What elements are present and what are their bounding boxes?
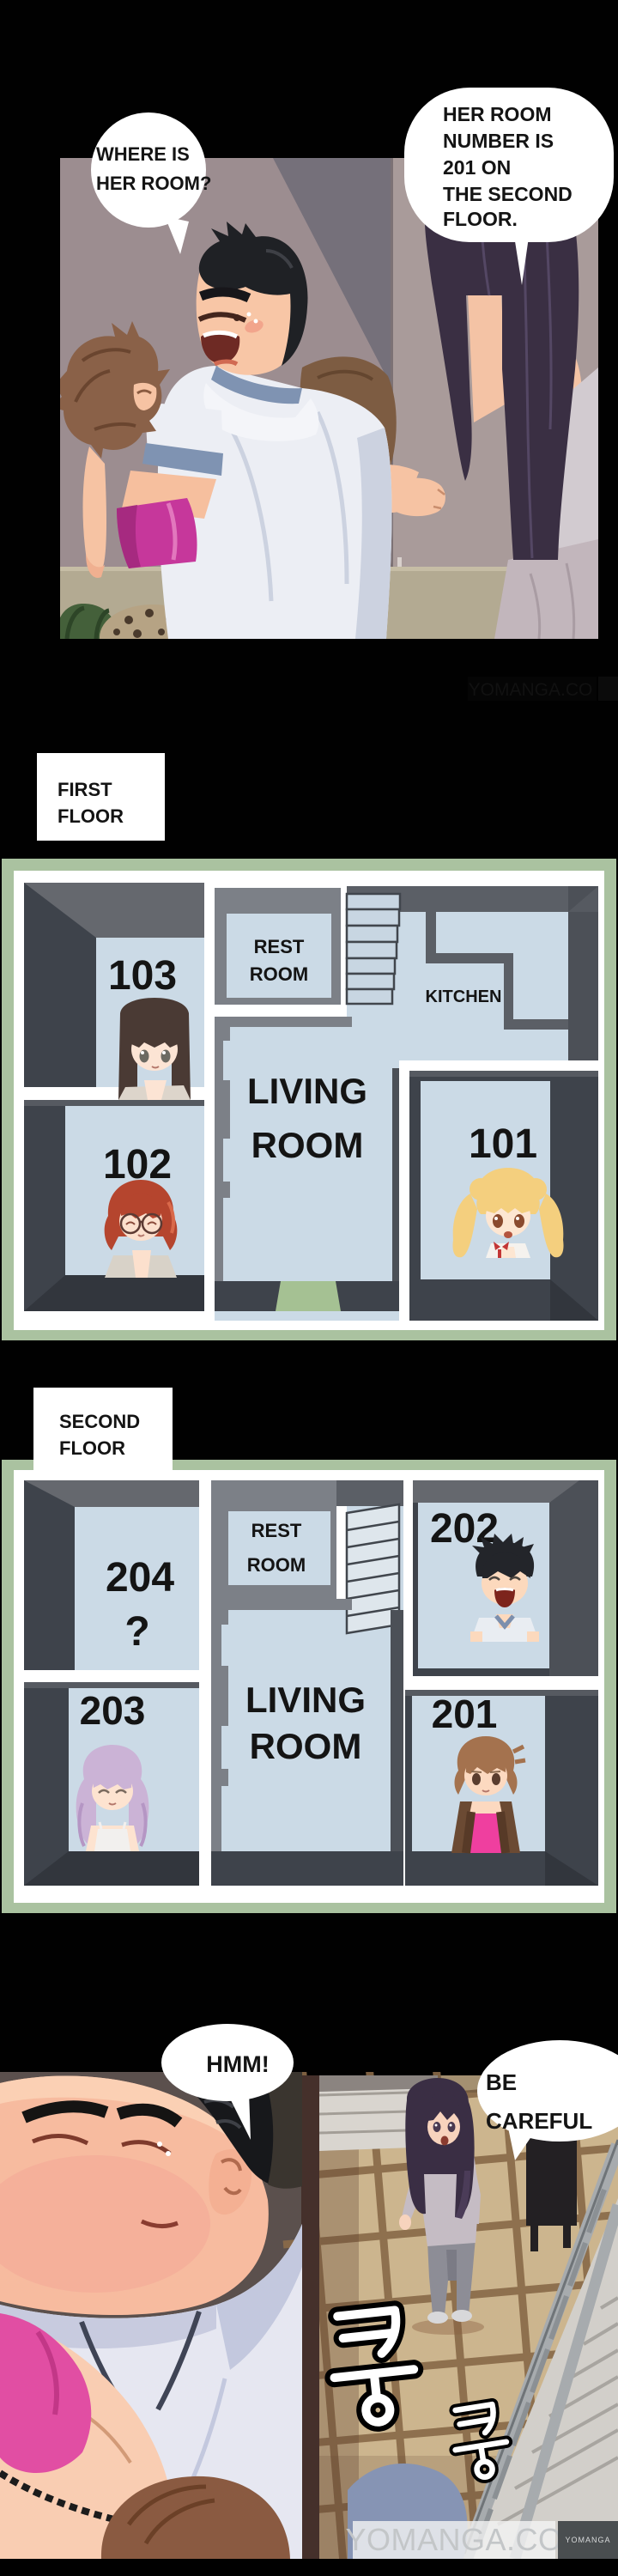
svg-text:SECOND: SECOND: [59, 1411, 140, 1432]
svg-text:YOMANGA.CO: YOMANGA.CO: [469, 680, 593, 700]
svg-text:ROOM: ROOM: [247, 1554, 306, 1576]
svg-text:CAREFUL: CAREFUL: [486, 2108, 592, 2134]
svg-text:ROOM: ROOM: [250, 1726, 362, 1766]
svg-text:FIRST: FIRST: [58, 779, 112, 800]
svg-text:THE SECOND: THE SECOND: [443, 183, 573, 205]
svg-text:WHERE IS: WHERE IS: [96, 143, 190, 165]
svg-text:?: ?: [124, 1609, 149, 1655]
svg-text:103: 103: [108, 953, 177, 999]
svg-text:101: 101: [469, 1121, 537, 1167]
svg-text:FLOOR: FLOOR: [59, 1437, 125, 1459]
svg-text:ROOM: ROOM: [250, 963, 308, 985]
svg-text:KITCHEN: KITCHEN: [426, 987, 502, 1006]
svg-text:201: 201: [432, 1692, 498, 1736]
svg-text:204: 204: [106, 1555, 174, 1601]
svg-text:FLOOR.: FLOOR.: [443, 208, 518, 230]
svg-text:HER ROOM?: HER ROOM?: [96, 173, 211, 194]
svg-text:YOMANGA: YOMANGA: [565, 2536, 610, 2544]
svg-text:203: 203: [80, 1688, 146, 1733]
svg-text:FLOOR: FLOOR: [58, 805, 124, 827]
svg-text:201 ON: 201 ON: [443, 156, 511, 179]
svg-text:LIVING: LIVING: [247, 1071, 367, 1111]
svg-text:BE: BE: [486, 2069, 517, 2095]
svg-text:LIVING: LIVING: [245, 1680, 366, 1720]
svg-text:NUMBER IS: NUMBER IS: [443, 130, 554, 152]
svg-text:ROOM: ROOM: [251, 1125, 364, 1165]
svg-text:REST: REST: [254, 936, 305, 957]
svg-text:HER ROOM: HER ROOM: [443, 103, 552, 125]
svg-text:YOMANGA.CO: YOMANGA.CO: [345, 2522, 562, 2557]
svg-text:REST: REST: [251, 1520, 302, 1541]
svg-text:HMM!: HMM!: [206, 2051, 269, 2077]
